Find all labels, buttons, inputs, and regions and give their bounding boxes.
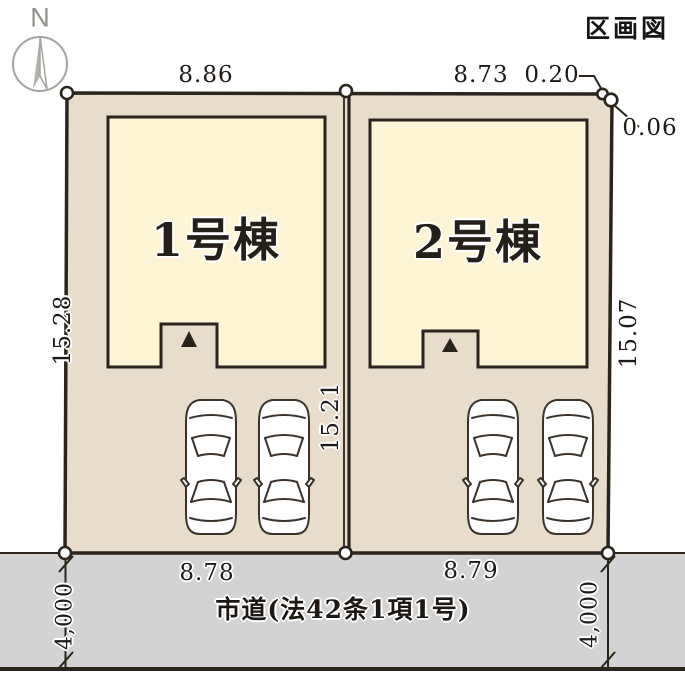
car-top-view-icon <box>463 400 523 534</box>
dimension-center-boundary: 15.21 <box>318 382 344 453</box>
dimension-lot2-top: 8.73 <box>453 62 508 88</box>
dimension-corner-offset-right: 0.06 <box>622 115 677 141</box>
road-name-label: 市道(法42条1項1号) <box>215 590 470 626</box>
dimension-lot1-bottom: 8.78 <box>179 560 234 586</box>
lot-map: 区画図 N 8.86 8.73 0.20 0.06 15.28 15.07 15… <box>0 0 685 700</box>
car-top-view-icon <box>254 400 314 534</box>
dimension-lot2-bottom: 8.79 <box>443 558 498 584</box>
car-top-view-icon <box>538 400 598 534</box>
dimension-lot1-left: 15.28 <box>50 295 76 366</box>
dimension-road-width-left: 4,000 <box>53 582 78 650</box>
compass-north-label: N <box>30 3 50 34</box>
car-top-view-icon <box>181 400 241 534</box>
dimension-corner-offset-top: 0.20 <box>524 62 579 88</box>
page-title: 区画図 <box>585 9 669 45</box>
north-arrow-icon <box>13 36 67 91</box>
building-1-label: 1号棟 <box>151 204 281 270</box>
dimension-lot2-right: 15.07 <box>616 298 642 369</box>
dimension-lot1-top: 8.86 <box>178 62 233 88</box>
dimension-road-width-right: 4,000 <box>578 580 603 648</box>
building-2-label: 2号棟 <box>413 206 543 272</box>
